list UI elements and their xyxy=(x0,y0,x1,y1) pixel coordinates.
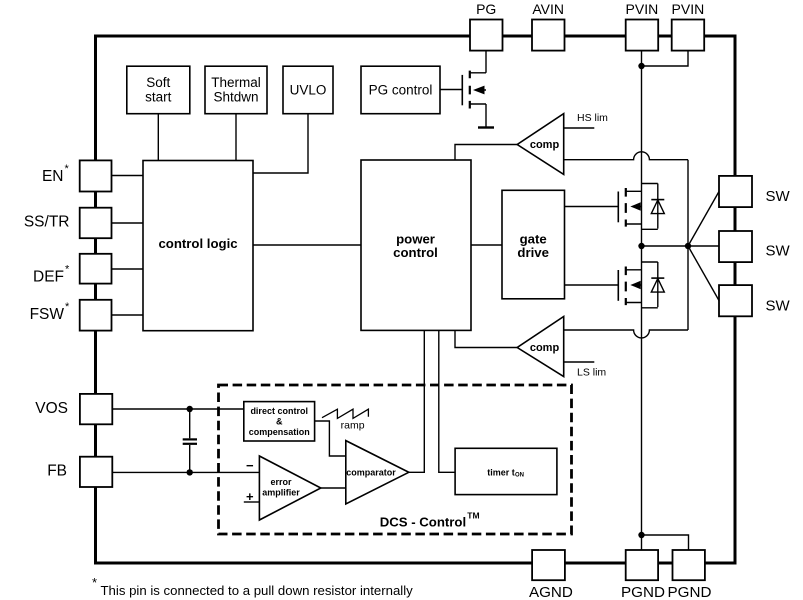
svg-text:PVIN: PVIN xyxy=(672,1,705,17)
svg-text:FB: FB xyxy=(47,463,67,480)
svg-text:DEF: DEF xyxy=(33,269,64,286)
svg-text:−: − xyxy=(246,458,254,473)
svg-text:Thermal: Thermal xyxy=(211,75,261,90)
svg-text:PG: PG xyxy=(476,1,496,17)
svg-text:control: control xyxy=(393,245,438,260)
svg-text:*: * xyxy=(65,163,70,175)
svg-text:UVLO: UVLO xyxy=(290,83,327,98)
svg-text:Shtdwn: Shtdwn xyxy=(213,90,258,105)
svg-text:PGND: PGND xyxy=(668,584,712,600)
svg-text:direct control: direct control xyxy=(250,406,308,416)
svg-text:timer t: timer t xyxy=(487,468,515,478)
svg-text:comparator: comparator xyxy=(346,468,396,478)
svg-text:EN: EN xyxy=(42,168,64,185)
svg-text:comp: comp xyxy=(530,139,560,151)
svg-text:SS/TR: SS/TR xyxy=(24,213,70,230)
svg-text:PG control: PG control xyxy=(369,83,433,98)
svg-text:control logic: control logic xyxy=(158,236,237,251)
svg-text:error: error xyxy=(270,477,292,487)
svg-text:TM: TM xyxy=(467,511,479,521)
svg-text:PVIN: PVIN xyxy=(626,1,659,17)
svg-text:*: * xyxy=(92,575,97,590)
svg-text:LS lim: LS lim xyxy=(577,367,606,379)
svg-text:SW: SW xyxy=(766,243,791,260)
svg-text:*: * xyxy=(65,301,70,313)
svg-text:This pin is connected to a pul: This pin is connected to a pull down res… xyxy=(101,583,414,598)
svg-text:VOS: VOS xyxy=(35,400,68,417)
svg-text:PGND: PGND xyxy=(621,584,665,600)
svg-text:drive: drive xyxy=(517,245,549,260)
svg-text:HS lim: HS lim xyxy=(577,112,608,124)
svg-text:compensation: compensation xyxy=(249,427,310,437)
svg-text:comp: comp xyxy=(530,342,560,354)
svg-text:ramp: ramp xyxy=(341,420,365,432)
svg-text:SW: SW xyxy=(766,188,791,205)
svg-text:+: + xyxy=(246,489,254,504)
svg-text:*: * xyxy=(65,264,70,276)
svg-text:AGND: AGND xyxy=(529,584,573,600)
svg-text:DCS - Control: DCS - Control xyxy=(380,515,466,530)
svg-text:ON: ON xyxy=(515,473,524,479)
svg-text:Soft: Soft xyxy=(146,75,170,90)
svg-text:FSW: FSW xyxy=(30,306,65,323)
svg-text:AVIN: AVIN xyxy=(532,1,564,17)
svg-text:SW: SW xyxy=(766,298,791,315)
svg-text:&: & xyxy=(276,417,283,427)
svg-text:start: start xyxy=(145,90,172,105)
svg-text:amplifier: amplifier xyxy=(262,488,300,498)
